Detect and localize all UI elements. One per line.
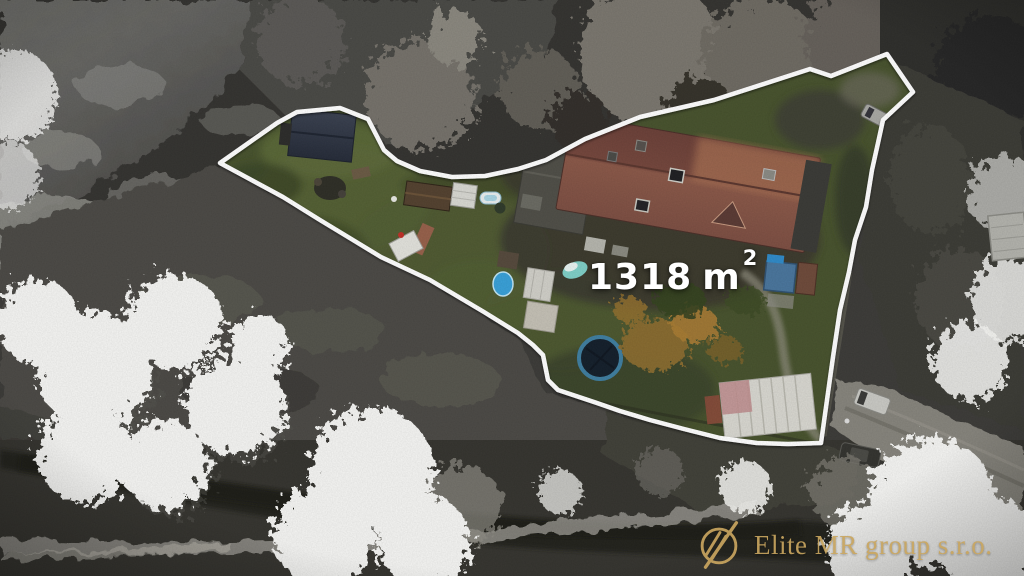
elite-mr-circle-slashes-logo-icon	[692, 518, 746, 572]
area-unit: m2	[702, 259, 758, 296]
area-value: 1318	[588, 260, 692, 296]
vignette	[0, 0, 1024, 576]
watermark: Elite MR group s.r.o.	[692, 518, 993, 572]
area-superscript: 2	[743, 246, 759, 270]
aerial-property-photo: 1318 m2 Elite MR group s.r.o.	[0, 0, 1024, 576]
scene-canvas	[0, 0, 1024, 576]
area-label: 1318 m2	[588, 259, 758, 296]
watermark-brand: Elite MR group s.r.o.	[754, 530, 993, 561]
